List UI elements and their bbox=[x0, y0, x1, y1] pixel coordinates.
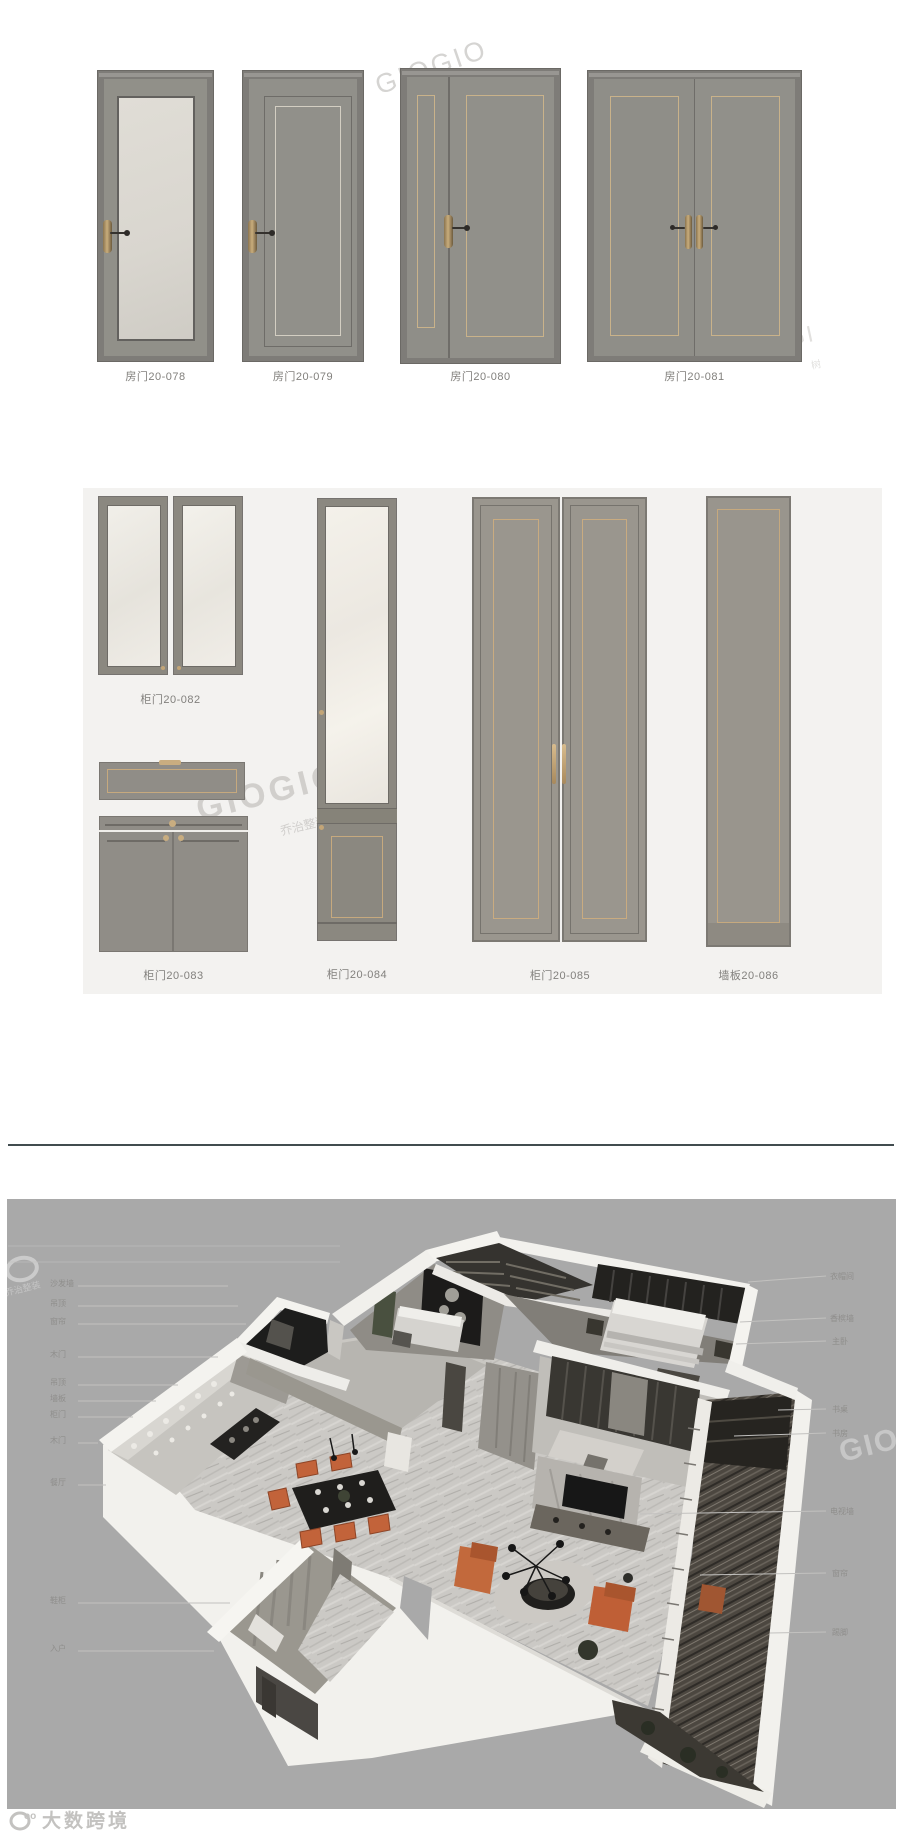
svg-text:沙发墙: 沙发墙 bbox=[50, 1278, 74, 1288]
svg-text:餐厅: 餐厅 bbox=[50, 1478, 66, 1487]
svg-text:木门: 木门 bbox=[50, 1349, 66, 1359]
svg-text:柜门: 柜门 bbox=[50, 1409, 66, 1419]
svg-text:香槟墙: 香槟墙 bbox=[830, 1313, 854, 1323]
svg-text:窗帘: 窗帘 bbox=[50, 1316, 66, 1326]
svg-text:踢脚: 踢脚 bbox=[832, 1627, 848, 1637]
svg-text:吊顶: 吊顶 bbox=[50, 1378, 66, 1387]
svg-text:木门: 木门 bbox=[50, 1435, 66, 1445]
svg-text:入户: 入户 bbox=[50, 1643, 66, 1653]
svg-text:墙板: 墙板 bbox=[50, 1393, 66, 1403]
svg-text:主卧: 主卧 bbox=[832, 1336, 848, 1346]
svg-text:oo: oo bbox=[24, 1811, 36, 1822]
svg-text:书桌: 书桌 bbox=[832, 1404, 848, 1414]
svg-text:鞋柜: 鞋柜 bbox=[50, 1595, 66, 1605]
svg-text:电视墙: 电视墙 bbox=[830, 1506, 854, 1516]
svg-text:吊顶: 吊顶 bbox=[50, 1299, 66, 1308]
svg-text:大数跨境: 大数跨境 bbox=[42, 1809, 130, 1832]
svg-text:窗帘: 窗帘 bbox=[832, 1568, 848, 1578]
svg-text:书房: 书房 bbox=[832, 1428, 848, 1438]
svg-text:衣帽间: 衣帽间 bbox=[830, 1271, 854, 1281]
